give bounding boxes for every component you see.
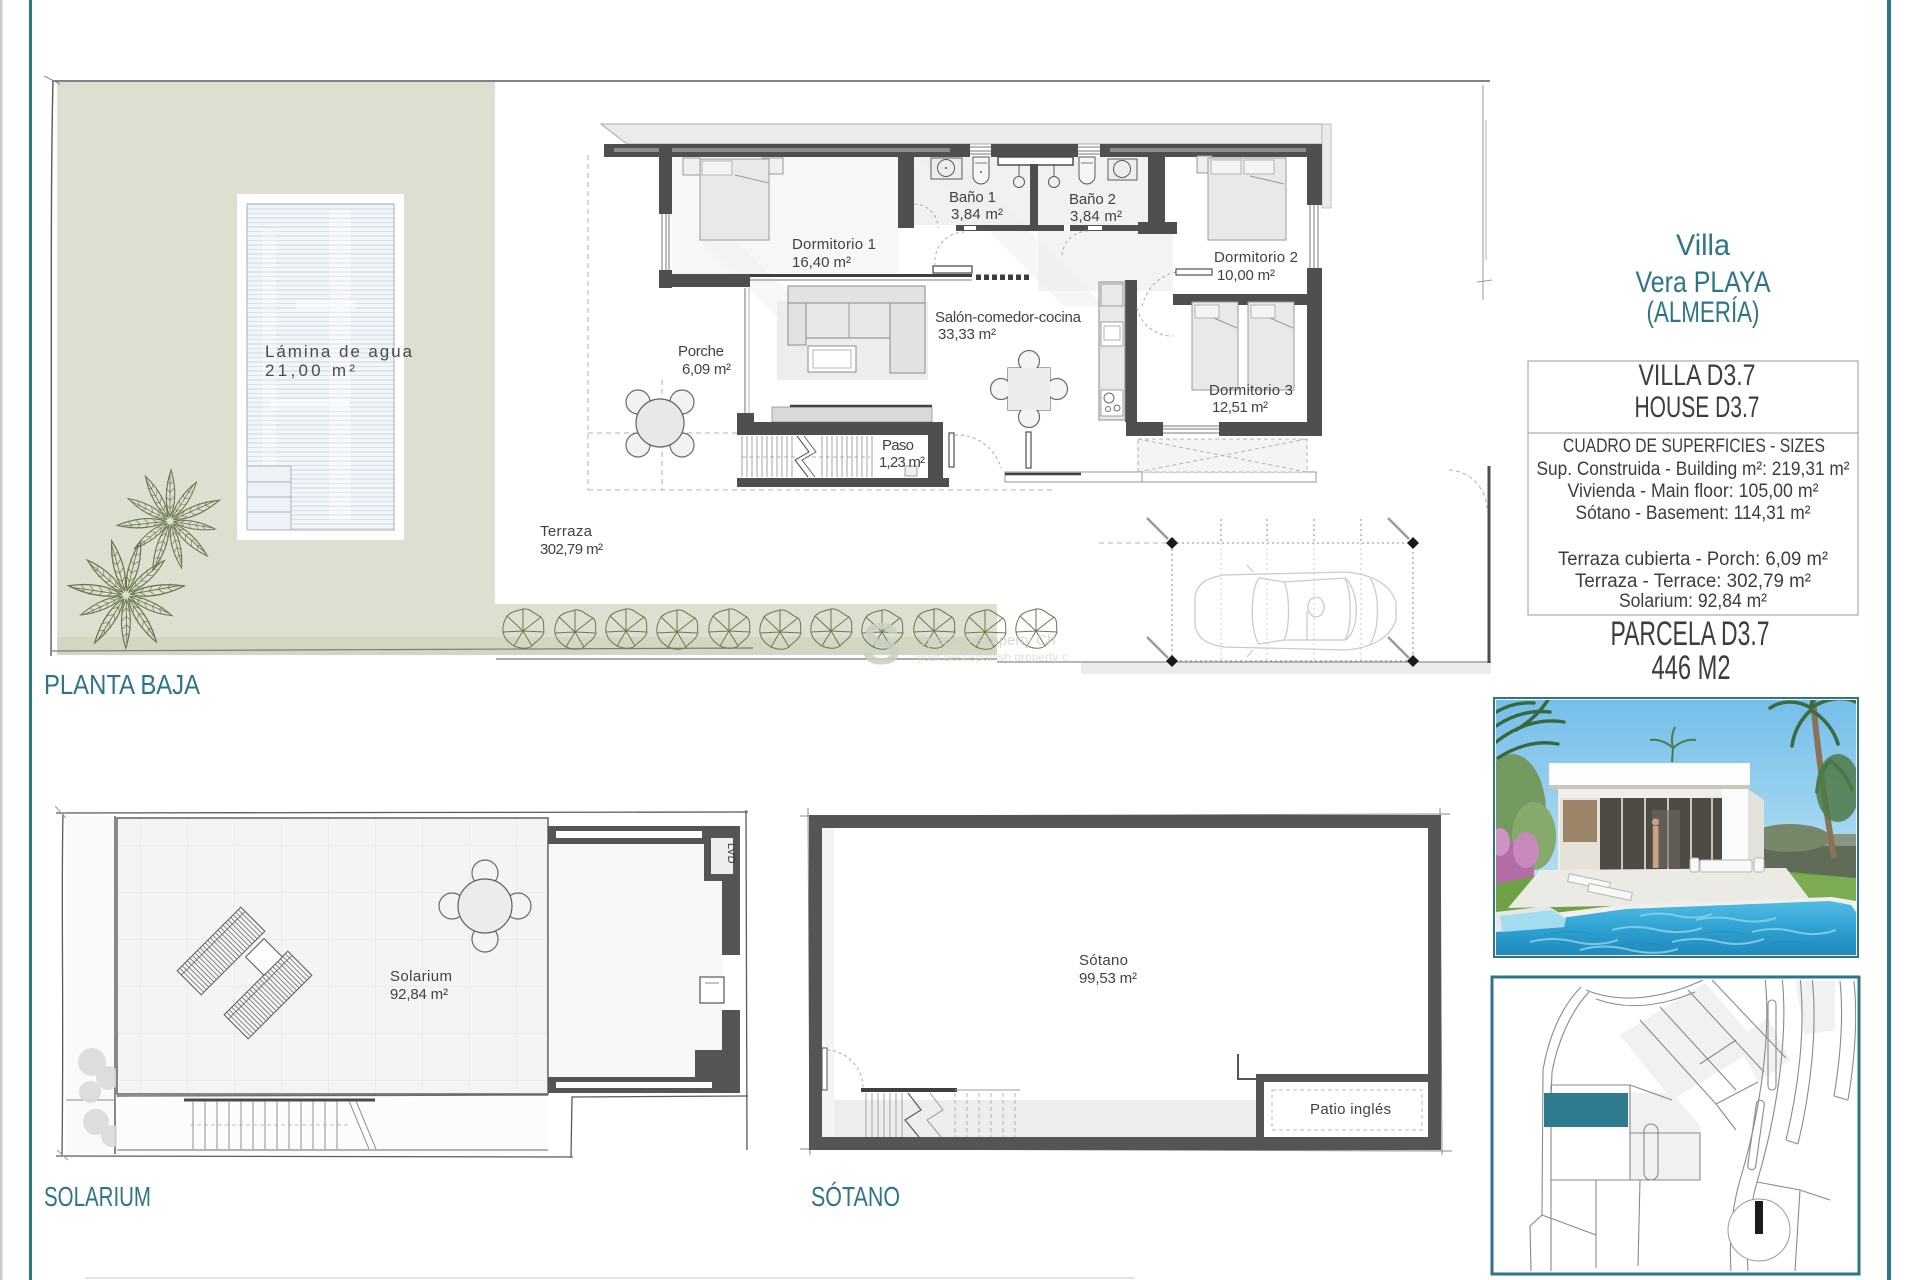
svg-text:92,84 m²: 92,84 m² [390,986,448,1003]
svg-text:Patio inglés: Patio inglés [1310,1101,1391,1118]
svg-text:Solarium: Solarium [390,968,452,985]
svg-text:HOUSE D3.7: HOUSE D3.7 [1635,391,1760,424]
svg-text:your best spanish property c: your best spanish property c [917,650,1068,664]
svg-text:Terraza - Terrace: 302,79 m²: Terraza - Terrace: 302,79 m² [1575,571,1811,592]
svg-text:VILLA D3.7: VILLA D3.7 [1639,359,1756,392]
svg-text:PLANTA BAJA: PLANTA BAJA [44,669,200,700]
svg-text:Vivienda - Main floor: 105,00: Vivienda - Main floor: 105,00 m² [1568,481,1819,502]
svg-text:446 M2: 446 M2 [1652,649,1731,687]
svg-text:(ALMERÍA): (ALMERÍA) [1647,296,1760,329]
svg-text:Spanish Property Ch: Spanish Property Ch [917,632,1055,649]
svg-text:Dormitorio 1: Dormitorio 1 [792,236,876,253]
svg-text:Paso: Paso [882,437,914,454]
svg-text:Terraza cubierta - Porch: 6,09: Terraza cubierta - Porch: 6,09 m² [1558,549,1828,570]
svg-text:10,00 m²: 10,00 m² [1217,267,1275,284]
svg-text:SÓTANO: SÓTANO [811,1181,900,1212]
svg-text:3,84 m²: 3,84 m² [1070,208,1122,225]
svg-text:Sup. Construida - Building m²:: Sup. Construida - Building m²: 219,31 m² [1537,459,1850,480]
svg-text:S: S [862,612,901,677]
svg-text:302,79 m²: 302,79 m² [540,541,603,558]
svg-text:CUADRO DE SUPERFICIES - SIZES: CUADRO DE SUPERFICIES - SIZES [1563,436,1825,457]
svg-text:Vera PLAYA: Vera PLAYA [1636,266,1771,299]
svg-text:Sótano: Sótano [1079,952,1128,969]
svg-text:SOLARIUM: SOLARIUM [44,1181,151,1212]
svg-text:Dormitorio 2: Dormitorio 2 [1214,249,1298,266]
svg-text:6,09 m²: 6,09 m² [682,361,731,378]
svg-text:Villa: Villa [1676,229,1730,262]
svg-text:Baño 1: Baño 1 [949,189,996,206]
svg-text:Salón-comedor-cocina: Salón-comedor-cocina [935,309,1082,326]
svg-text:Lámina de agua: Lámina de agua [265,342,413,361]
svg-text:Porche: Porche [678,343,724,360]
svg-text:Sótano - Basement: 114,31 m²: Sótano - Basement: 114,31 m² [1576,503,1811,524]
svg-text:1,23 m²: 1,23 m² [879,454,925,471]
svg-text:99,53 m²: 99,53 m² [1079,970,1137,987]
svg-text:3,84 m²: 3,84 m² [951,206,1003,223]
svg-text:LVD: LVD [725,843,737,864]
svg-text:Terraza: Terraza [540,523,593,540]
svg-text:16,40 m²: 16,40 m² [792,254,851,271]
svg-text:Dormitorio 3: Dormitorio 3 [1209,382,1293,399]
svg-text:12,51 m²: 12,51 m² [1212,399,1268,416]
svg-text:33,33 m²: 33,33 m² [938,326,996,343]
svg-text:Baño 2: Baño 2 [1069,191,1116,208]
svg-text:Solarium: 92,84 m²: Solarium: 92,84 m² [1619,591,1767,612]
svg-text:PARCELA D3.7: PARCELA D3.7 [1611,615,1770,653]
